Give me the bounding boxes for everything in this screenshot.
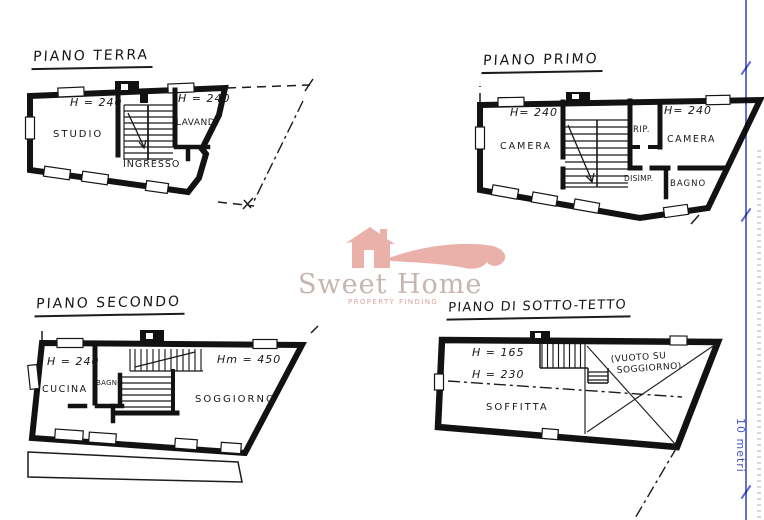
room-label-camera-left: CAMERA	[500, 141, 552, 152]
scale-bar-label: 10 metri	[734, 418, 747, 473]
boundary-dashed-lines	[218, 79, 313, 209]
floorplan-sheet: PIANO TERRA PIANO PRIMO PIANO SECONDO PI…	[0, 0, 764, 520]
entrance-door	[140, 91, 148, 103]
height-label-left: H = 240	[70, 96, 122, 109]
floorplan-piano-terra: H = 240 H = 240 STUDIO LAVAND. INGRESSO	[20, 75, 330, 215]
chimney	[140, 330, 164, 343]
room-label-disimpegno: DISIMP.	[624, 174, 653, 183]
brand-name: Sweet Home	[298, 269, 482, 300]
room-label-camera-right: CAMERA	[667, 134, 716, 145]
house-icon	[346, 227, 395, 268]
chimney	[566, 92, 590, 104]
room-label-cucina: CUCINA	[42, 384, 88, 395]
floorplan-piano-sottotetto: H = 165 H = 230 SOFFITTA (VUOTO SU SOGGI…	[430, 330, 730, 520]
height-label-230: H = 230	[472, 368, 524, 381]
height-label-right: Hm = 450	[217, 353, 281, 366]
plan-title-piano-secondo: PIANO SECONDO	[34, 294, 185, 318]
plan-title-piano-terra: PIANO TERRA	[31, 47, 153, 70]
room-label-rip: RIP.	[633, 125, 650, 135]
brand-tagline: PROPERTY FINDING	[348, 298, 438, 306]
room-label-soggiorno: SOGGIORNO	[195, 394, 276, 405]
height-label-right: H = 240	[178, 92, 230, 105]
height-label-165: H = 165	[472, 346, 524, 359]
room-label-bagno: BAGNO	[96, 379, 123, 387]
scan-artifact-strip	[757, 150, 761, 520]
plan-title-piano-primo: PIANO PRIMO	[481, 51, 603, 74]
height-label-left: H= 240	[510, 106, 558, 119]
height-label-left: H = 240	[47, 355, 99, 368]
height-label-right: H= 240	[664, 104, 712, 117]
room-label-bagno: BAGNO	[670, 179, 706, 189]
room-label-soffitta: SOFFITTA	[486, 402, 549, 413]
room-label-lavanderia: LAVAND.	[176, 118, 219, 128]
boundary-dashed-lines	[42, 326, 318, 340]
watermark-logo: Sweet Home PROPERTY FINDING	[290, 220, 510, 310]
chimney	[530, 331, 550, 342]
floorplan-piano-secondo: H = 240 Hm = 450 CUCINA BAGNO SOGGIORNO	[25, 325, 345, 505]
room-label-ingresso: INGRESSO	[123, 159, 180, 170]
terrace-outline	[28, 452, 242, 482]
floorplan-piano-primo: H= 240 H= 240 CAMERA RIP. CAMERA DISIMP.…	[470, 85, 764, 230]
room-label-studio: STUDIO	[53, 129, 103, 140]
swoosh-heart-shape	[384, 244, 505, 269]
